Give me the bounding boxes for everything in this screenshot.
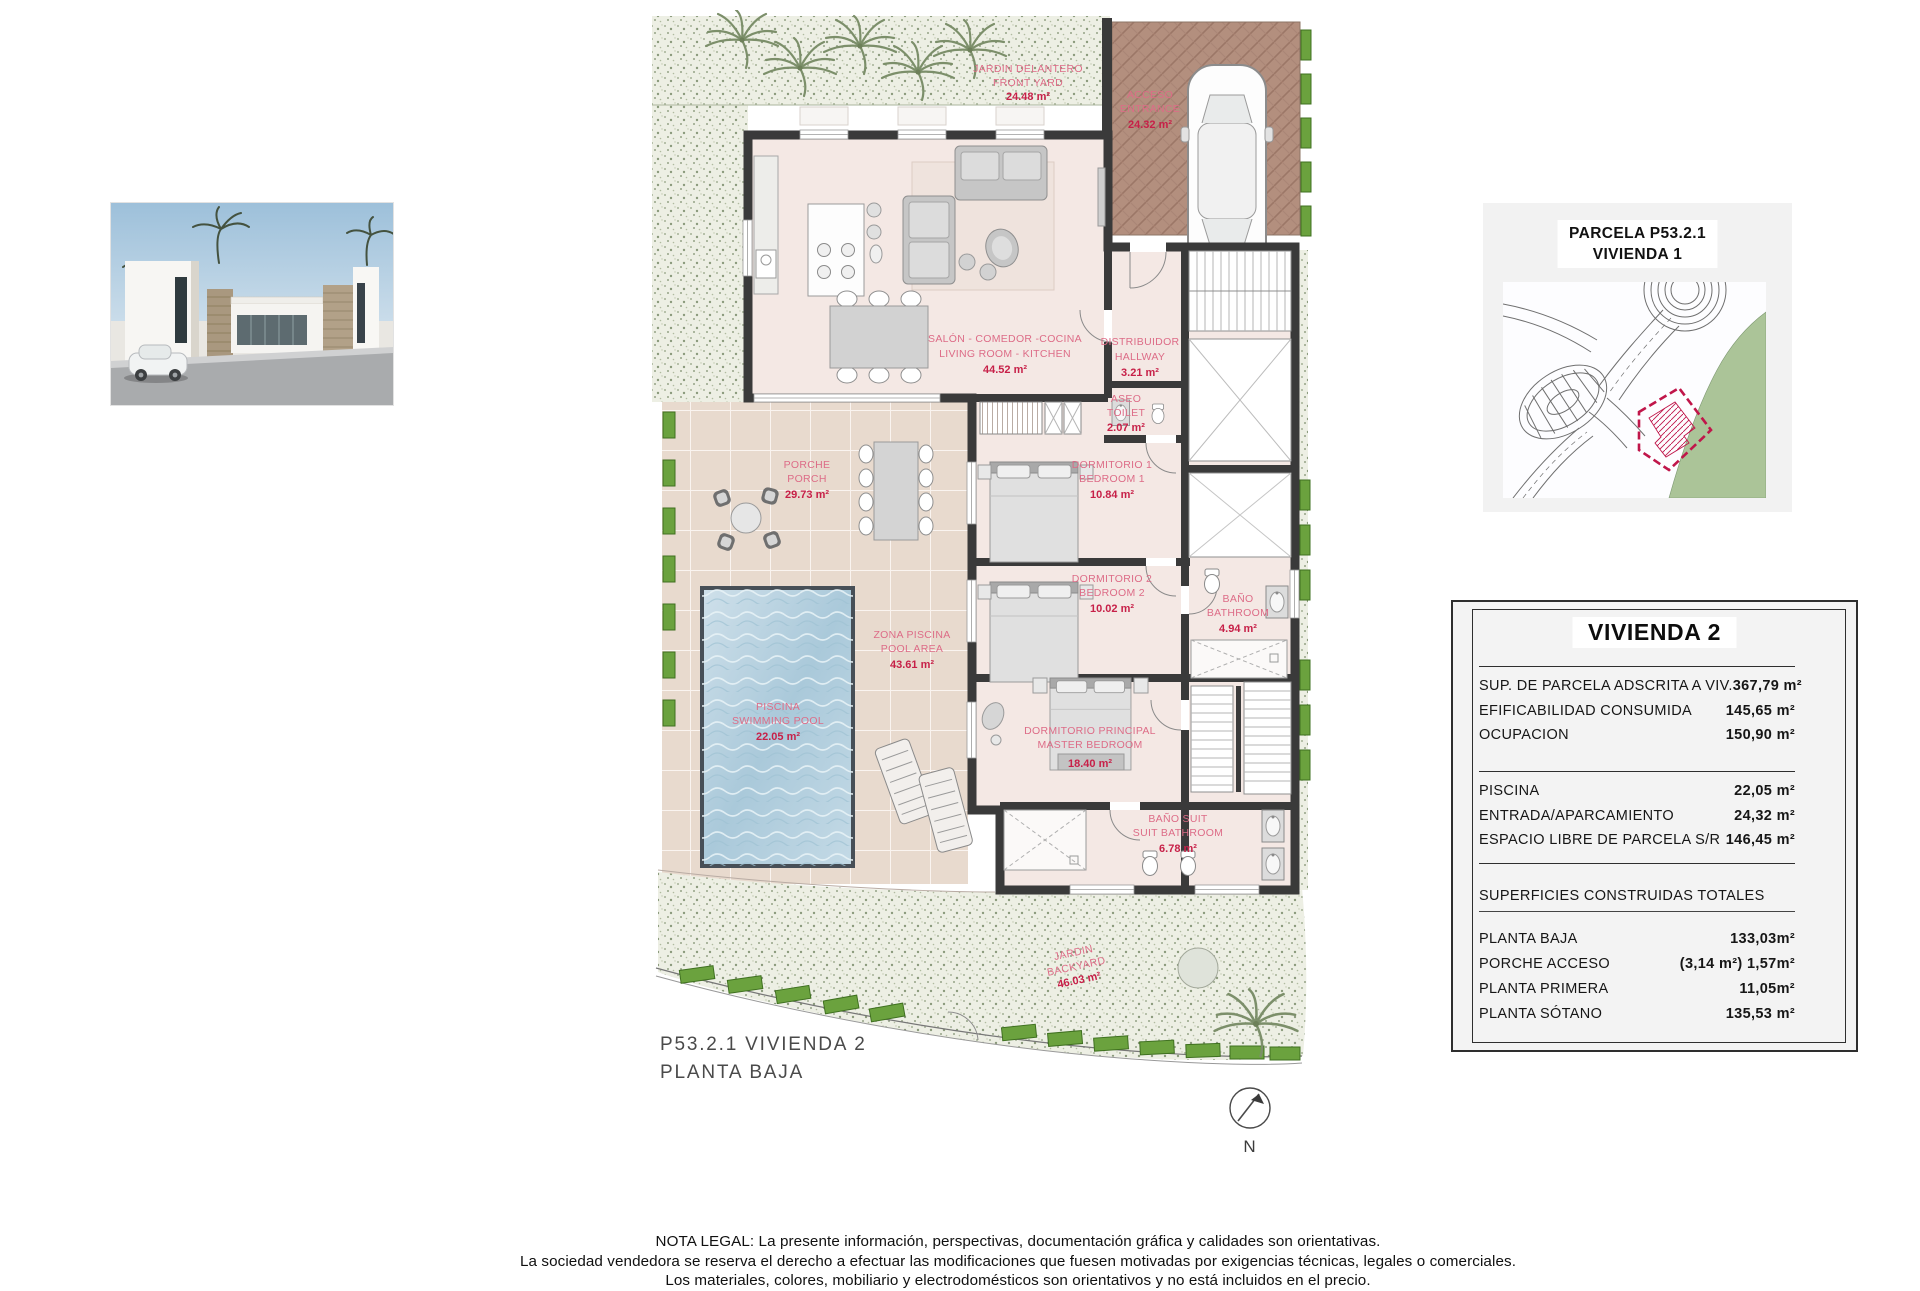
- svg-text:3.21 m²: 3.21 m²: [1121, 367, 1159, 379]
- plan-sheet: { "colors": { "wall": "#3a3a3a", "label_…: [0, 0, 1920, 1280]
- spec-row-value: 150,90 m²: [1726, 727, 1795, 743]
- spec-row-label: PLANTA SÓTANO: [1479, 1006, 1602, 1022]
- svg-text:BEDROOM 1: BEDROOM 1: [1079, 473, 1145, 485]
- svg-text:10.02 m²: 10.02 m²: [1090, 603, 1134, 615]
- svg-text:BATHROOM: BATHROOM: [1207, 607, 1269, 619]
- spec-row: PLANTA BAJA 133,03m²: [1479, 926, 1795, 951]
- legal-line3: Los materiales, colores, mobiliario y el…: [518, 1271, 1518, 1291]
- plan-caption-line2: PLANTA BAJA: [660, 1059, 867, 1087]
- spec-row-label: ESPACIO LIBRE DE PARCELA S/R: [1479, 832, 1720, 848]
- svg-text:24.48 m²: 24.48 m²: [1006, 91, 1050, 103]
- site-title-line2: VIVIENDA 1: [1569, 244, 1706, 265]
- spec-row: SUP. DE PARCELA ADSCRITA A VIV. 367,79 m…: [1479, 674, 1795, 699]
- svg-text:6.78 m²: 6.78 m²: [1159, 843, 1197, 855]
- legal-note: NOTA LEGAL: La presente información, per…: [518, 1232, 1518, 1291]
- svg-text:TOILET: TOILET: [1107, 407, 1146, 419]
- divider: [1479, 666, 1795, 667]
- spec-row-label: EFIFICABILIDAD CONSUMIDA: [1479, 703, 1692, 719]
- spec-row: OCUPACION 150,90 m²: [1479, 723, 1795, 748]
- svg-text:BAÑO: BAÑO: [1223, 592, 1254, 605]
- spec-row: PISCINA 22,05 m²: [1479, 779, 1795, 804]
- spec-group-parcel: SUP. DE PARCELA ADSCRITA A VIV. 367,79 m…: [1479, 674, 1795, 748]
- label-entrance: ACCESO ENTRANCE 24.32 m²: [1120, 89, 1180, 131]
- svg-text:BEDROOM 2: BEDROOM 2: [1079, 587, 1145, 599]
- spec-row: PLANTA SÓTANO 135,53 m²: [1479, 1001, 1795, 1026]
- svg-text:44.52 m²: 44.52 m²: [983, 364, 1027, 376]
- divider: [1479, 863, 1795, 864]
- svg-text:ACCESO: ACCESO: [1127, 89, 1173, 101]
- svg-text:JARDIN DELANTERO: JARDIN DELANTERO: [973, 63, 1083, 75]
- svg-text:SWIMMING POOL: SWIMMING POOL: [732, 715, 824, 727]
- floor-plan: JARDIN DELANTERO FRONT YARD 24.48 m² ACC…: [650, 10, 1315, 1175]
- svg-text:22.05 m²: 22.05 m²: [756, 731, 800, 743]
- spec-group-exterior: PISCINA 22,05 m² ENTRADA/APARCAMIENTO 24…: [1479, 779, 1795, 853]
- svg-text:24.32 m²: 24.32 m²: [1128, 119, 1172, 131]
- svg-text:18.40 m²: 18.40 m²: [1068, 758, 1112, 770]
- spec-row-label: ENTRADA/APARCAMIENTO: [1479, 808, 1674, 824]
- spec-row-value: 367,79 m²: [1733, 678, 1802, 694]
- svg-text:10.84 m²: 10.84 m²: [1090, 489, 1134, 501]
- svg-text:PISCINA: PISCINA: [756, 701, 800, 713]
- svg-text:4.94 m²: 4.94 m²: [1219, 623, 1257, 635]
- svg-text:PORCHE: PORCHE: [784, 459, 831, 471]
- bedroom2-furniture: [978, 582, 1093, 682]
- site-title-line1: PARCELA P53.2.1: [1569, 223, 1706, 244]
- svg-text:29.73 m²: 29.73 m²: [785, 489, 829, 501]
- outdoor-dining-table: [874, 442, 918, 540]
- driveway: [1102, 18, 1300, 270]
- spec-row-value: 22,05 m²: [1734, 783, 1795, 799]
- lightwell: [1189, 339, 1291, 461]
- site-map: [1503, 282, 1766, 498]
- svg-text:FRONT YARD: FRONT YARD: [993, 77, 1063, 89]
- spec-row-label: PLANTA PRIMERA: [1479, 981, 1609, 997]
- spec-row-value: 24,32 m²: [1734, 808, 1795, 824]
- dining-set: [830, 291, 928, 383]
- stairs-up: [1189, 251, 1291, 331]
- spec-title: VIVIENDA 2: [1572, 617, 1737, 648]
- svg-text:DORMITORIO 1: DORMITORIO 1: [1072, 459, 1152, 471]
- svg-text:DISTRIBUIDOR: DISTRIBUIDOR: [1101, 336, 1180, 348]
- bedroom1-furniture: [978, 402, 1093, 562]
- site-location-panel: PARCELA P53.2.1 VIVIENDA 1: [1483, 203, 1792, 512]
- north-compass-icon: N: [1230, 1088, 1270, 1156]
- spec-row-value: 145,65 m²: [1726, 703, 1795, 719]
- svg-text:MASTER BEDROOM: MASTER BEDROOM: [1037, 739, 1142, 751]
- porch-table: [731, 503, 761, 533]
- divider: [1479, 771, 1795, 772]
- spec-row-label: SUP. DE PARCELA ADSCRITA A VIV.: [1479, 678, 1733, 694]
- exterior-render-photo: [110, 202, 394, 406]
- spec-row: EFIFICABILIDAD CONSUMIDA 145,65 m²: [1479, 699, 1795, 724]
- spec-row-label: OCUPACION: [1479, 727, 1569, 743]
- spec-row-label: PORCHE ACCESO: [1479, 956, 1610, 972]
- plan-caption-line1: P53.2.1 VIVIENDA 2: [660, 1031, 867, 1059]
- svg-text:POOL AREA: POOL AREA: [881, 643, 943, 655]
- spec-row-value: 135,53 m²: [1726, 1006, 1795, 1022]
- spec-row-label: PISCINA: [1479, 783, 1539, 799]
- site-panel-title: PARCELA P53.2.1 VIVIENDA 1: [1557, 220, 1718, 268]
- spec-section-title: SUPERFICIES CONSTRUIDAS TOTALES: [1479, 888, 1795, 912]
- svg-text:DORMITORIO PRINCIPAL: DORMITORIO PRINCIPAL: [1024, 725, 1156, 737]
- label-porch: PORCHE PORCH 29.73 m²: [784, 459, 831, 501]
- exterior-render-illustration: [111, 203, 393, 405]
- label-toilet: ASEO TOILET 2.07 m²: [1107, 393, 1146, 434]
- svg-text:ZONA PISCINA: ZONA PISCINA: [873, 629, 950, 641]
- svg-text:DORMITORIO 2: DORMITORIO 2: [1072, 573, 1152, 585]
- spec-row: PLANTA PRIMERA 11,05m²: [1479, 976, 1795, 1001]
- spec-group-built: PLANTA BAJA 133,03m² PORCHE ACCESO (3,14…: [1479, 926, 1795, 1026]
- svg-text:BAÑO SUIT: BAÑO SUIT: [1148, 812, 1208, 825]
- svg-text:SUIT BATHROOM: SUIT BATHROOM: [1133, 827, 1223, 839]
- plan-caption: P53.2.1 VIVIENDA 2 PLANTA BAJA: [660, 1031, 867, 1087]
- legal-line2: La sociedad vendedora se reserva el dere…: [518, 1252, 1518, 1272]
- svg-text:ENTRANCE: ENTRANCE: [1120, 103, 1180, 115]
- tree-icon: [1178, 948, 1218, 988]
- spec-row: ENTRADA/APARCAMIENTO 24,32 m²: [1479, 804, 1795, 829]
- legal-line1: NOTA LEGAL: La presente información, per…: [518, 1232, 1518, 1252]
- spec-row: ESPACIO LIBRE DE PARCELA S/R 146,45 m²: [1479, 828, 1795, 853]
- svg-text:ASEO: ASEO: [1111, 393, 1141, 405]
- svg-text:PORCH: PORCH: [787, 473, 826, 485]
- spec-row-value: 11,05m²: [1739, 981, 1795, 997]
- svg-text:SALÓN - COMEDOR -COCINA: SALÓN - COMEDOR -COCINA: [928, 332, 1082, 345]
- spec-row-value: (3,14 m²) 1,57m²: [1680, 956, 1795, 972]
- svg-text:2.07 m²: 2.07 m²: [1107, 422, 1145, 434]
- spec-row-value: 146,45 m²: [1726, 832, 1795, 848]
- svg-text:HALLWAY: HALLWAY: [1115, 351, 1165, 363]
- spec-row-value: 133,03m²: [1730, 931, 1795, 947]
- svg-text:43.61 m²: 43.61 m²: [890, 659, 934, 671]
- spec-table-panel: VIVIENDA 2 SUP. DE PARCELA ADSCRITA A VI…: [1451, 600, 1858, 1052]
- spec-row: PORCHE ACCESO (3,14 m²) 1,57m²: [1479, 951, 1795, 976]
- north-label: N: [1243, 1137, 1256, 1156]
- spec-row-label: PLANTA BAJA: [1479, 931, 1578, 947]
- car-icon: [1181, 65, 1273, 270]
- svg-text:LIVING ROOM - KITCHEN: LIVING ROOM - KITCHEN: [939, 348, 1071, 360]
